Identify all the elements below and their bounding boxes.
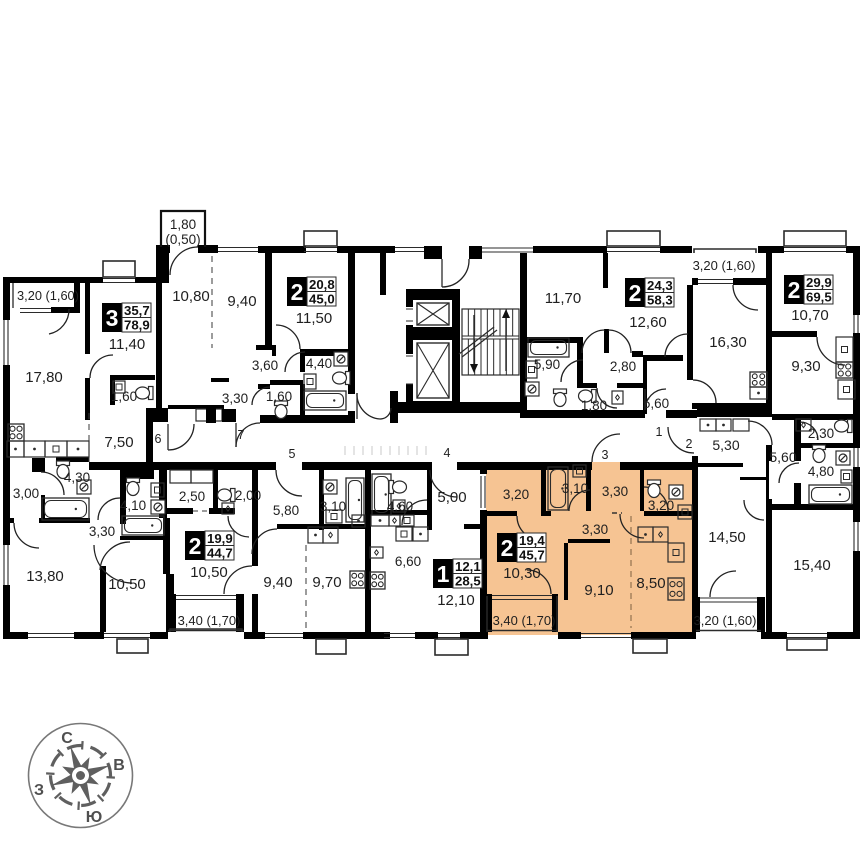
- svg-text:3,20 (1,60): 3,20 (1,60): [17, 288, 79, 303]
- svg-text:69,5: 69,5: [806, 290, 832, 305]
- svg-text:35,7: 35,7: [124, 303, 150, 318]
- svg-text:3: 3: [106, 305, 119, 331]
- svg-text:6: 6: [155, 432, 162, 446]
- svg-text:7: 7: [238, 428, 245, 442]
- svg-text:20,8: 20,8: [309, 277, 335, 292]
- svg-text:10,70: 10,70: [791, 307, 829, 324]
- svg-text:1: 1: [437, 561, 450, 587]
- svg-text:4,80: 4,80: [808, 464, 834, 479]
- svg-text:11,40: 11,40: [109, 336, 145, 353]
- svg-text:3,10: 3,10: [320, 499, 346, 514]
- svg-text:4,10: 4,10: [120, 498, 146, 513]
- svg-text:58,3: 58,3: [647, 293, 673, 308]
- svg-text:14,50: 14,50: [708, 529, 746, 546]
- svg-text:Ю: Ю: [86, 809, 103, 826]
- svg-text:4,60: 4,60: [387, 499, 413, 514]
- svg-text:45,7: 45,7: [519, 548, 545, 563]
- svg-text:5,60: 5,60: [643, 396, 669, 411]
- svg-text:11,70: 11,70: [545, 290, 581, 307]
- svg-text:3,20 (1,60): 3,20 (1,60): [693, 258, 756, 273]
- svg-text:2,50: 2,50: [179, 489, 205, 504]
- svg-text:3,30: 3,30: [222, 391, 248, 406]
- svg-text:5: 5: [289, 447, 296, 461]
- svg-text:6,60: 6,60: [395, 554, 421, 569]
- svg-text:9,30: 9,30: [791, 358, 820, 375]
- svg-text:2: 2: [629, 280, 642, 306]
- svg-text:12,10: 12,10: [437, 592, 475, 609]
- svg-text:29,9: 29,9: [806, 275, 832, 290]
- svg-text:3,10: 3,10: [562, 481, 588, 496]
- svg-text:2: 2: [686, 437, 693, 451]
- svg-text:10,50: 10,50: [108, 576, 146, 593]
- svg-text:45,0: 45,0: [309, 292, 335, 307]
- svg-text:24,3: 24,3: [647, 278, 673, 293]
- svg-text:4,30: 4,30: [64, 470, 90, 485]
- svg-text:2: 2: [788, 277, 801, 303]
- svg-text:9,40: 9,40: [227, 293, 256, 310]
- svg-text:1: 1: [656, 425, 663, 439]
- svg-text:3,20 (1,60): 3,20 (1,60): [694, 613, 757, 628]
- svg-text:15,40: 15,40: [793, 557, 831, 574]
- svg-text:3,30: 3,30: [89, 524, 115, 539]
- svg-text:13,80: 13,80: [26, 568, 64, 585]
- svg-text:1,60: 1,60: [266, 389, 292, 404]
- svg-text:10,80: 10,80: [172, 288, 210, 305]
- svg-text:5,90: 5,90: [534, 357, 560, 372]
- svg-text:С: С: [61, 730, 73, 747]
- svg-text:4: 4: [444, 446, 451, 460]
- svg-text:2,80: 2,80: [610, 359, 636, 374]
- svg-text:2: 2: [189, 533, 202, 559]
- svg-text:4,40: 4,40: [306, 356, 332, 371]
- svg-text:12,60: 12,60: [629, 314, 667, 331]
- svg-text:3,30: 3,30: [602, 484, 628, 499]
- svg-text:7,50: 7,50: [104, 434, 133, 451]
- svg-text:В: В: [113, 757, 125, 774]
- svg-text:11,50: 11,50: [296, 310, 332, 327]
- svg-text:28,5: 28,5: [455, 574, 481, 589]
- svg-text:З: З: [34, 782, 44, 799]
- svg-text:3: 3: [602, 448, 609, 462]
- svg-text:3,20: 3,20: [503, 487, 529, 502]
- svg-text:10,50: 10,50: [190, 564, 228, 581]
- svg-text:2,00: 2,00: [235, 488, 261, 503]
- svg-text:10,30: 10,30: [503, 565, 541, 582]
- svg-text:3,00: 3,00: [13, 486, 39, 501]
- svg-text:3,40 (1,70): 3,40 (1,70): [178, 613, 241, 628]
- svg-text:3,60: 3,60: [252, 358, 278, 373]
- svg-text:78,9: 78,9: [124, 318, 150, 333]
- svg-text:9,70: 9,70: [312, 574, 341, 591]
- svg-text:5,80: 5,80: [273, 503, 299, 518]
- svg-text:1,80: 1,80: [170, 217, 196, 232]
- svg-text:44,7: 44,7: [207, 546, 233, 561]
- svg-text:19,9: 19,9: [207, 531, 233, 546]
- svg-text:9,10: 9,10: [584, 582, 613, 599]
- svg-text:12,1: 12,1: [455, 559, 481, 574]
- svg-text:2: 2: [291, 279, 304, 305]
- svg-text:1,80: 1,80: [581, 398, 607, 413]
- svg-text:9,40: 9,40: [263, 574, 292, 591]
- svg-text:2: 2: [501, 535, 514, 561]
- svg-text:(0,50): (0,50): [165, 232, 200, 247]
- svg-text:8,50: 8,50: [636, 575, 665, 592]
- svg-text:5,30: 5,30: [712, 437, 739, 453]
- svg-text:3,20: 3,20: [648, 498, 674, 513]
- svg-text:3,30: 3,30: [582, 522, 608, 537]
- svg-text:5,60: 5,60: [769, 449, 796, 465]
- svg-text:5,00: 5,00: [437, 489, 466, 506]
- svg-text:17,80: 17,80: [25, 369, 63, 386]
- svg-text:2,30: 2,30: [808, 426, 834, 441]
- svg-text:3,40 (1,70): 3,40 (1,70): [493, 613, 556, 628]
- svg-text:19,4: 19,4: [519, 533, 545, 548]
- svg-text:16,30: 16,30: [709, 334, 747, 351]
- svg-text:1,60: 1,60: [111, 389, 137, 404]
